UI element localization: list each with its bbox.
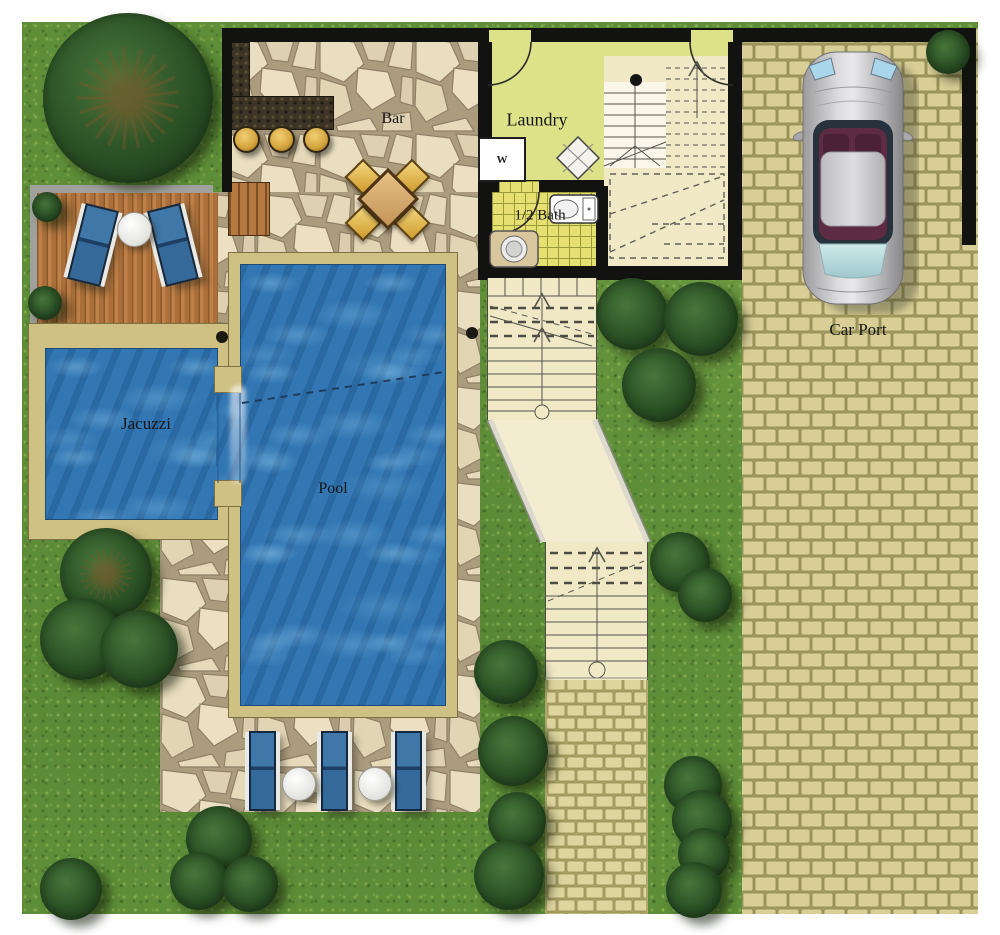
half-bath-label: 1/2 Bath [514,208,565,225]
deck-shrub-2 [28,286,62,320]
bar-counter [224,96,334,130]
waterfall-streak [230,385,246,485]
deck-side-table [117,212,152,247]
bush-bottom-3 [222,856,278,912]
wall-laundry-right [728,28,742,280]
pool-label: Pool [318,480,347,498]
bar-stool-3 [303,126,330,153]
tree-branches [80,548,132,600]
pool-lounger-3 [395,731,422,811]
wall-top [222,28,975,42]
wall-bath-right [596,186,608,276]
pool-side-table-2 [358,767,392,801]
wall-bar-left [222,28,232,192]
bar-stool-1 [233,126,260,153]
half-bath-floor [492,192,600,266]
door-gap-bath [499,181,539,192]
bar-stool-2 [268,126,295,153]
path-lower-stairs [545,540,648,680]
deck-shrub-1 [32,192,62,222]
carport-bush [926,30,970,74]
bush-path-3 [622,348,696,422]
bar-label: Bar [381,110,404,128]
laundry-label: Laundry [507,110,568,131]
bush-path-1 [596,278,668,350]
washer: W [478,137,526,182]
bush-bottom-2 [170,852,228,910]
washer-label: W [497,154,508,166]
car [793,48,919,314]
bush-walk-l4 [474,840,544,910]
big-tree [43,13,213,183]
tree-branches [77,47,179,149]
door-gap-laundry-right [691,30,733,42]
jacuzzi-water [45,348,218,520]
path-upper-stairs [487,278,597,420]
car-port-label: Car Port [829,320,886,340]
bush-path-2 [664,282,738,356]
bar-bench [228,182,270,236]
bush-bottom-4 [40,858,102,920]
door-gap-laundry-left [489,30,531,42]
bush-mid-2 [678,568,732,622]
pool-lounger-2 [321,731,348,811]
jacuzzi-label: Jacuzzi [121,414,171,434]
stairs-solid-area [604,82,666,168]
walkway-paving [545,678,648,914]
bush-sw-3 [100,610,178,688]
bush-walk-r4 [666,862,722,918]
pool-side-table-1 [282,767,316,801]
floor-plan-canvas: W [0,0,1000,935]
bush-walk-l1 [474,640,538,704]
pool-lounger-1 [249,731,276,811]
bush-walk-l2 [478,716,548,786]
